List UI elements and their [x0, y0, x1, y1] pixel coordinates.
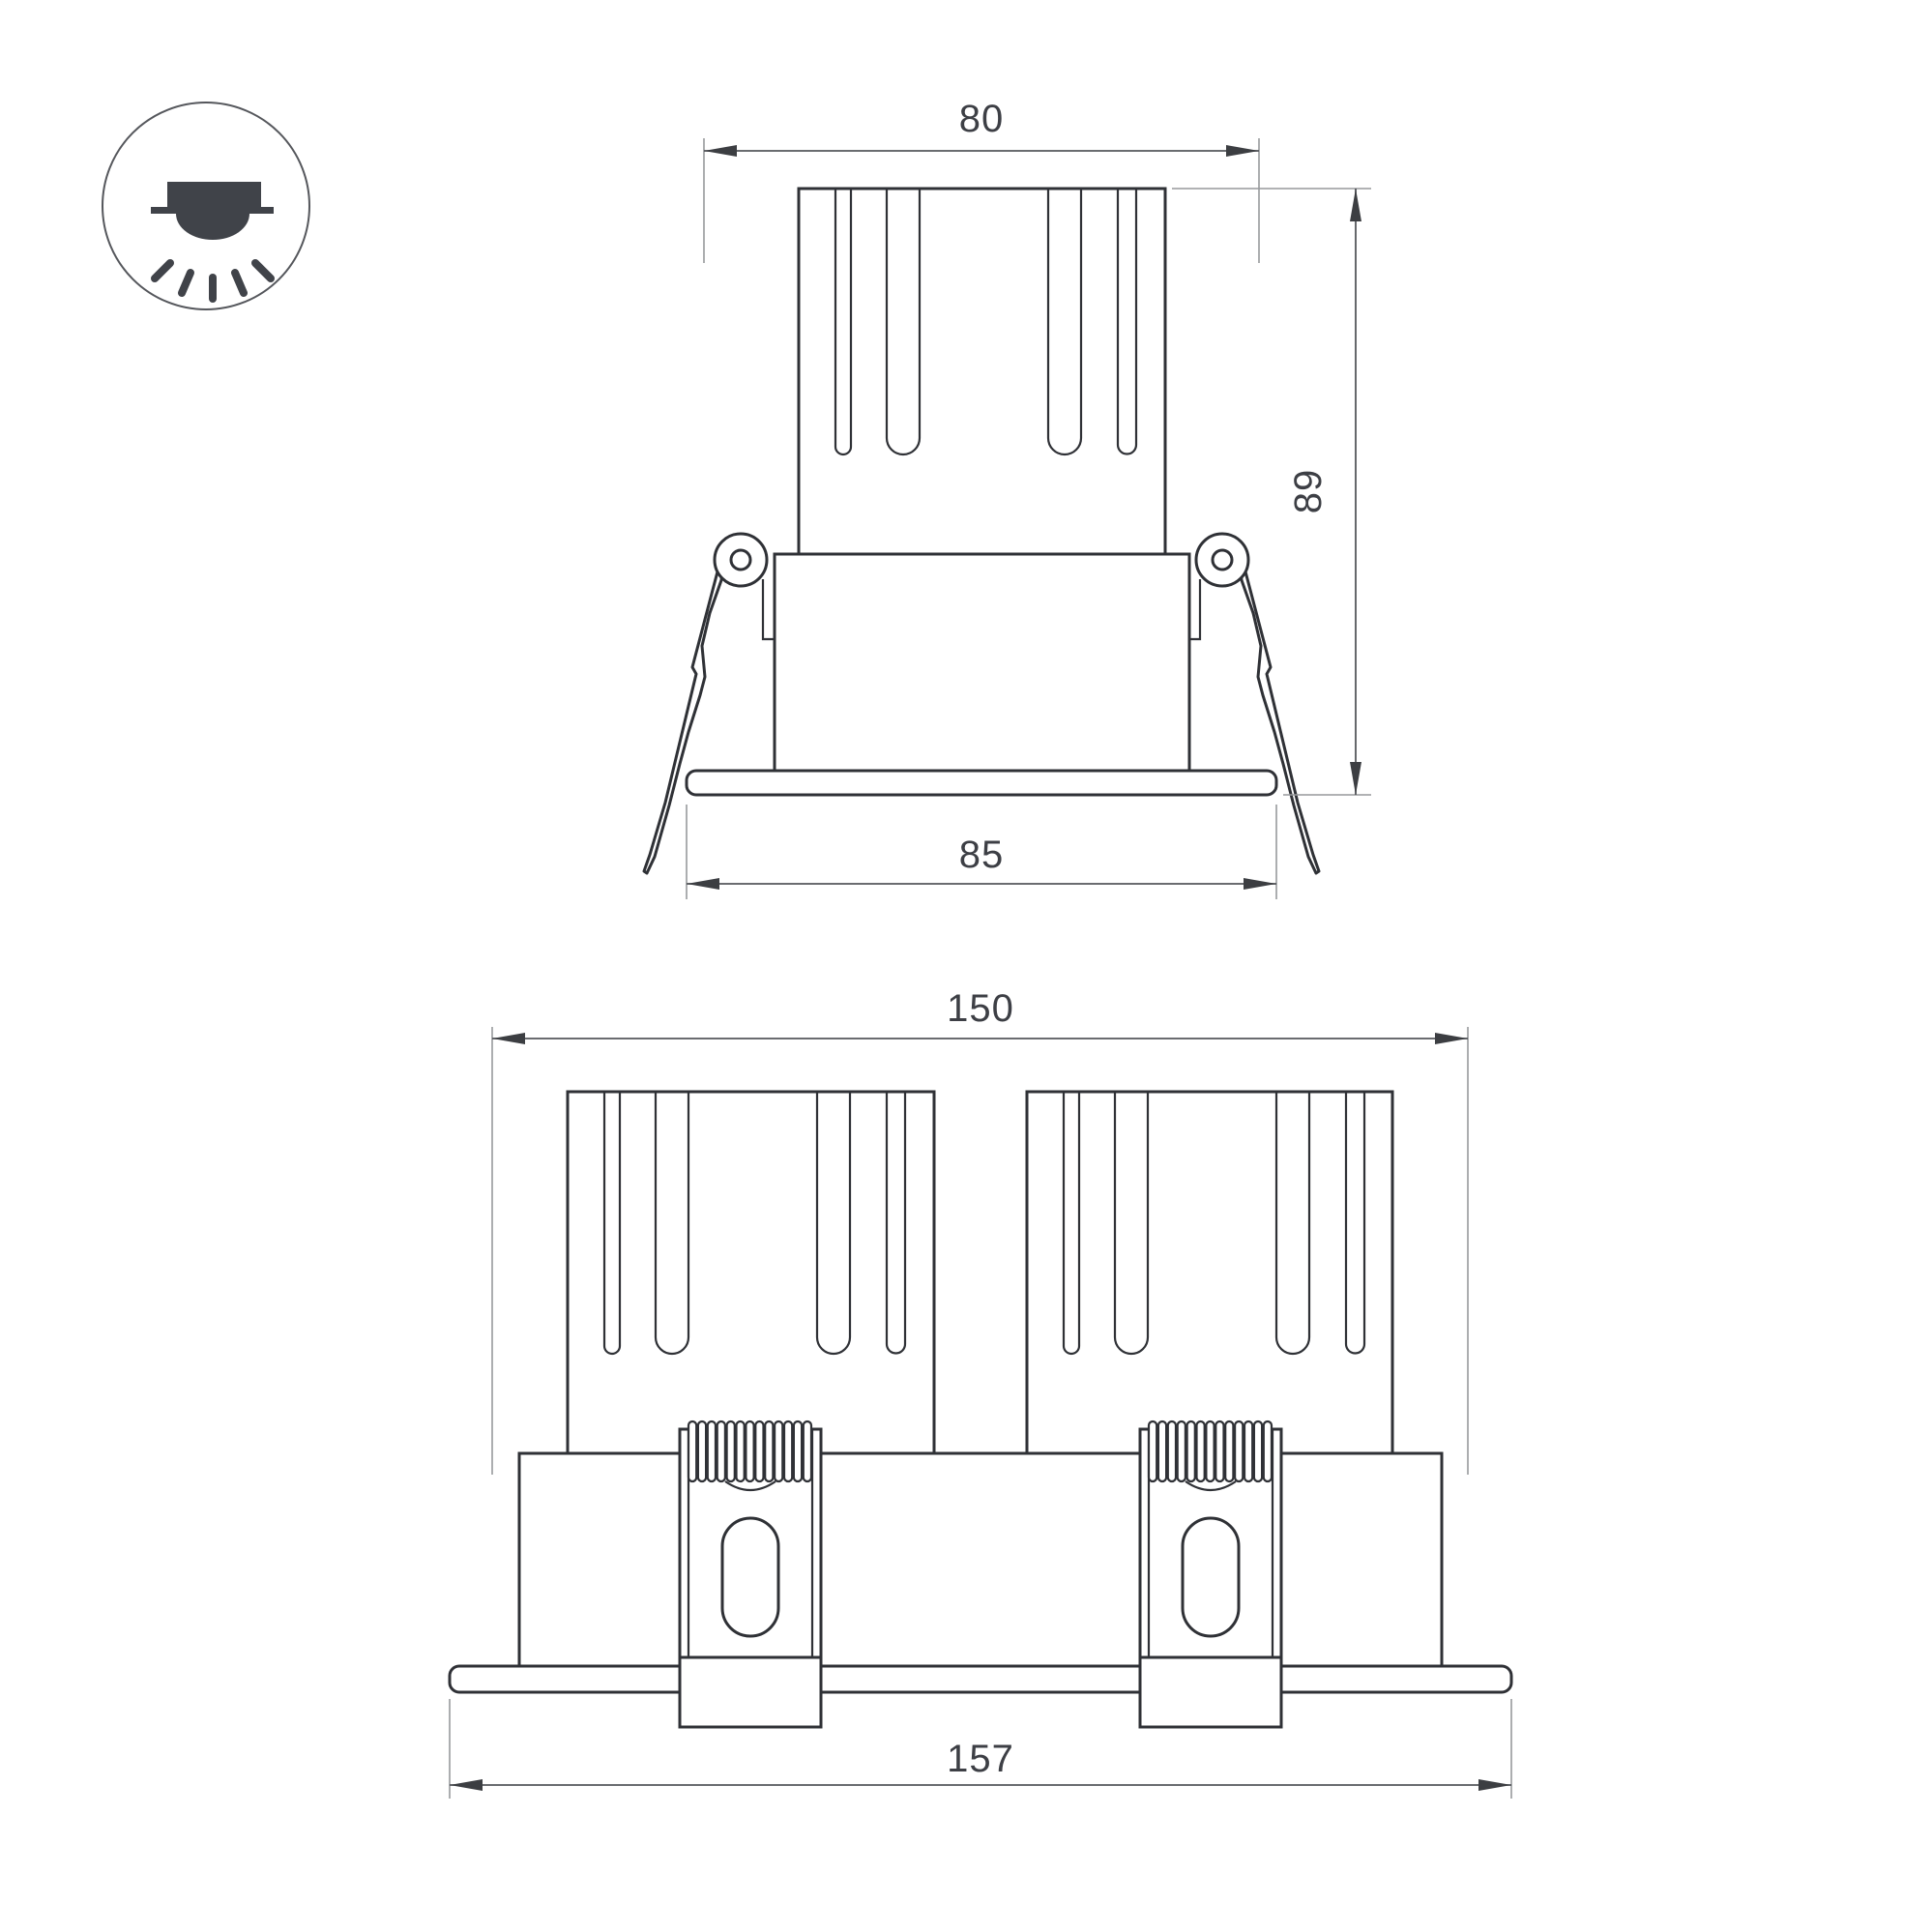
- clamp-foot: [680, 1657, 821, 1727]
- dim-label-80: 80: [959, 98, 1005, 140]
- dim-arrow: [1478, 1779, 1511, 1791]
- recessed-downlight-icon: [102, 102, 309, 309]
- single-spring-clip-right: [1188, 534, 1319, 873]
- single-module-front-view: 80 89 85: [644, 98, 1371, 899]
- dim-arrow: [1244, 878, 1276, 890]
- icon-lamp-body: [167, 182, 261, 208]
- coil-loop: [698, 1421, 706, 1481]
- dim-label-157: 157: [947, 1738, 1014, 1780]
- dim-label-85: 85: [959, 834, 1005, 876]
- single-driver-housing: [775, 554, 1189, 771]
- double-heatsink-right: [1027, 1092, 1392, 1453]
- spring-clip-bracket: [763, 579, 775, 639]
- clamp-spring-coil: [688, 1421, 811, 1481]
- dimension-flange-width-85: 85: [687, 805, 1276, 899]
- spring-clip-pivot: [715, 534, 767, 586]
- coil-loop: [708, 1421, 716, 1481]
- double-driver-housing: [519, 1453, 1442, 1666]
- dim-arrow: [1226, 145, 1259, 157]
- coil-loop: [794, 1421, 802, 1481]
- coil-loop: [775, 1421, 782, 1481]
- dim-label-89: 89: [1287, 469, 1330, 514]
- dim-arrow: [1350, 762, 1361, 795]
- screw-clamp-right: [1140, 1421, 1281, 1727]
- dim-arrow: [1435, 1033, 1468, 1044]
- dim-arrow: [492, 1033, 525, 1044]
- dim-arrow: [704, 145, 737, 157]
- dim-arrow: [687, 878, 719, 890]
- clamp-slot: [722, 1518, 778, 1636]
- dim-label-150: 150: [947, 987, 1014, 1030]
- coil-loop: [717, 1421, 725, 1481]
- coil-loop: [737, 1421, 745, 1481]
- spring-clip-arm: [644, 539, 726, 873]
- double-module-front-view: 150 157: [450, 987, 1511, 1799]
- single-trim-flange: [687, 771, 1276, 795]
- dimension-flange-width-157: 157: [450, 1699, 1511, 1799]
- coil-loop: [784, 1421, 792, 1481]
- icon-ceiling-flange: [151, 207, 274, 214]
- coil-loop: [765, 1421, 773, 1481]
- single-heatsink: [799, 189, 1165, 554]
- screw-clamp-left: [680, 1421, 821, 1727]
- coil-loop: [746, 1421, 753, 1481]
- technical-drawing-canvas: 80 89 85: [0, 0, 1932, 1932]
- double-trim-flange: [450, 1666, 1511, 1692]
- coil-loop: [688, 1421, 696, 1481]
- double-heatsink-left: [568, 1092, 934, 1453]
- dim-arrow: [1350, 189, 1361, 221]
- coil-loop: [755, 1421, 763, 1481]
- coil-loop: [727, 1421, 735, 1481]
- single-spring-clip-left: [644, 534, 775, 873]
- coil-loop: [804, 1421, 811, 1481]
- dim-arrow: [450, 1779, 483, 1791]
